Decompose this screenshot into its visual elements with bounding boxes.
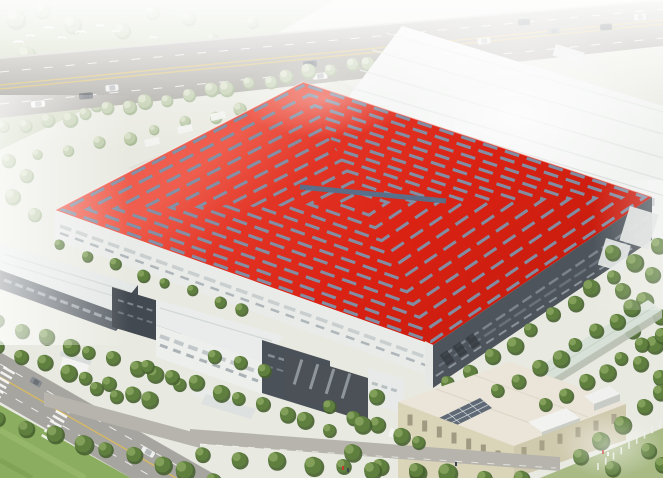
haze-bottom-right bbox=[556, 412, 663, 478]
scene-canvas bbox=[0, 0, 663, 478]
haze-top-soft bbox=[0, 0, 663, 110]
factory-campus-aerial-rendering bbox=[0, 0, 663, 478]
haze-left bbox=[0, 95, 130, 345]
haze-right-mid bbox=[592, 180, 663, 310]
main-corner-pillar bbox=[425, 341, 433, 388]
